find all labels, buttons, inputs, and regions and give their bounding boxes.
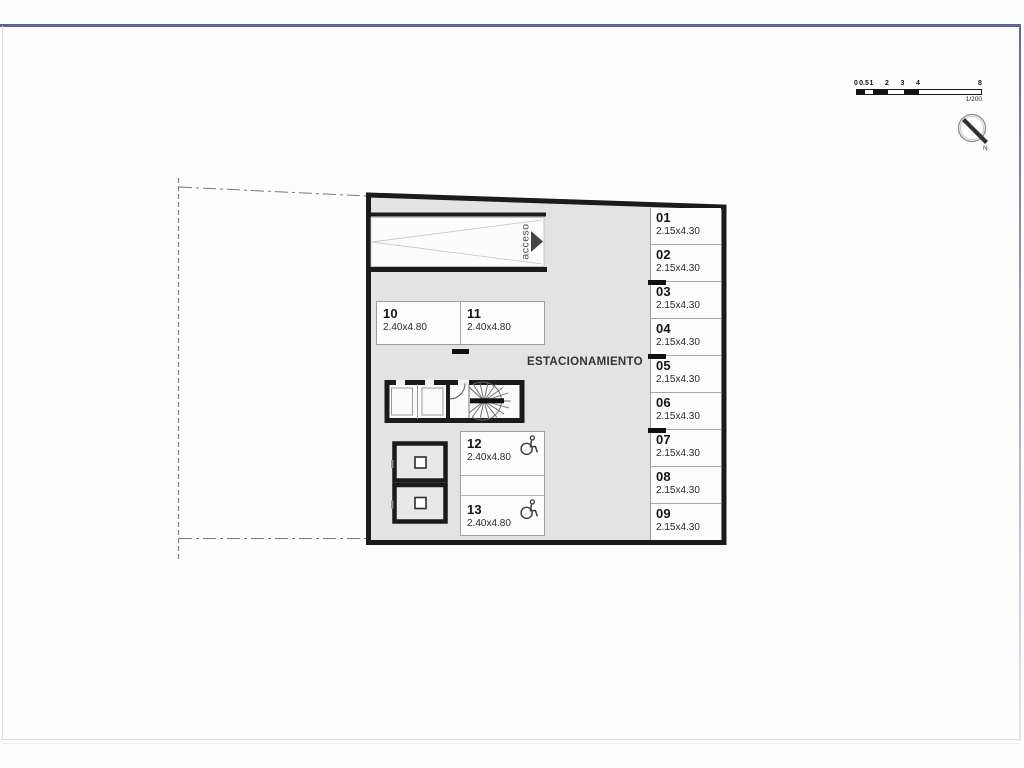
machine-rooms xyxy=(391,444,446,522)
equipment-upper xyxy=(415,457,426,468)
parking-stall-09: 09 2.15x4.30 xyxy=(651,504,721,540)
north-arrow-icon: N xyxy=(959,115,989,153)
stall-number: 02 xyxy=(656,247,721,263)
ramp-surface xyxy=(371,218,544,267)
parking-stall-04: 04 2.15x4.30 xyxy=(651,319,721,356)
stall-dimensions: 2.40x4.80 xyxy=(383,322,460,334)
scale-tick-3: 3 xyxy=(901,80,905,88)
stall-number: 05 xyxy=(656,358,721,374)
parking-stalls-accessible: 12 2.40x4.80 13 2.40x4.80 xyxy=(460,431,545,536)
stall-dimensions: 2.15x4.30 xyxy=(656,411,721,423)
stair-core xyxy=(387,380,522,422)
parking-stall-03: 03 2.15x4.30 xyxy=(651,282,721,319)
parking-stall-10: 10 2.40x4.80 xyxy=(377,302,461,344)
scale-bar-rule xyxy=(856,89,982,95)
scale-seg-2 xyxy=(873,90,889,94)
wheelchair-icon xyxy=(519,499,540,520)
scale-tick-0: 0 xyxy=(854,80,858,88)
stall-dimensions: 2.15x4.30 xyxy=(656,337,721,349)
parking-stall-07: 07 2.15x4.30 xyxy=(651,430,721,467)
floor-plan-drawing: N xyxy=(0,0,1024,768)
stall-number: 06 xyxy=(656,395,721,411)
stall-dimensions: 2.15x4.30 xyxy=(656,374,721,386)
column-marker xyxy=(648,280,666,285)
parking-stalls-middle-row: 10 2.40x4.80 11 2.40x4.80 xyxy=(376,301,545,345)
parking-stall-13: 13 2.40x4.80 xyxy=(461,496,544,535)
north-label: N xyxy=(983,145,988,152)
equipment-lower xyxy=(415,498,426,509)
parking-stall-08: 08 2.15x4.30 xyxy=(651,467,721,504)
parking-stall-05: 05 2.15x4.30 xyxy=(651,356,721,393)
ramp-access-label: acceso xyxy=(520,212,533,272)
stall-number: 04 xyxy=(656,321,721,337)
door-opening-left xyxy=(396,380,405,386)
scale-seg-1 xyxy=(857,90,865,94)
scale-bar: 0 0.5 1 2 3 4 8 1/200 xyxy=(856,80,980,104)
stall-number: 07 xyxy=(656,432,721,448)
parking-stalls-right-column: 01 2.15x4.30 02 2.15x4.30 03 2.15x4.30 0… xyxy=(650,208,721,540)
stall-number: 10 xyxy=(383,306,460,322)
door-mark-lower xyxy=(391,501,394,509)
floor-plan-page: N 0 0.5 1 2 3 4 8 1/200 ESTACIONAMIENTO … xyxy=(0,0,1024,768)
door-opening-stair xyxy=(458,380,469,386)
stall-dimensions: 2.15x4.30 xyxy=(656,448,721,460)
stall-dimensions: 2.15x4.30 xyxy=(656,485,721,497)
wheelchair-icon xyxy=(519,435,540,456)
scale-tick-2: 2 xyxy=(885,80,889,88)
scale-tick-1: 1 xyxy=(870,80,874,88)
stall-number: 11 xyxy=(467,306,544,322)
scale-tick-4: 4 xyxy=(916,80,920,88)
property-line-top xyxy=(179,187,367,196)
stall-number: 03 xyxy=(656,284,721,300)
stall-dimensions: 2.15x4.30 xyxy=(656,263,721,275)
column-marker xyxy=(452,349,469,354)
stall-dimensions: 2.15x4.30 xyxy=(656,522,721,534)
stall-number: 08 xyxy=(656,469,721,485)
scale-tick-8: 8 xyxy=(978,80,982,88)
parking-stall-01: 01 2.15x4.30 xyxy=(651,208,721,245)
stall-dimensions: 2.15x4.30 xyxy=(656,226,721,238)
door-opening-right xyxy=(425,380,434,386)
stall-dimensions: 2.40x4.80 xyxy=(467,322,544,334)
parking-stall-11: 11 2.40x4.80 xyxy=(461,302,544,344)
scale-seg-3 xyxy=(904,90,920,94)
area-label: ESTACIONAMIENTO xyxy=(527,356,639,368)
parking-stall-06: 06 2.15x4.30 xyxy=(651,393,721,430)
stair-newel-rail xyxy=(470,398,504,403)
accessible-aisle xyxy=(461,476,544,496)
parking-stall-12: 12 2.40x4.80 xyxy=(461,432,544,476)
scale-ratio: 1/200 xyxy=(966,96,982,103)
parking-stall-02: 02 2.15x4.30 xyxy=(651,245,721,282)
column-marker xyxy=(648,354,666,359)
scale-tick-05: 0.5 xyxy=(859,80,869,88)
stall-dimensions: 2.15x4.30 xyxy=(656,300,721,312)
stall-number: 09 xyxy=(656,506,721,522)
stall-number: 01 xyxy=(656,210,721,226)
column-marker xyxy=(648,428,666,433)
door-mark-upper xyxy=(391,460,394,468)
